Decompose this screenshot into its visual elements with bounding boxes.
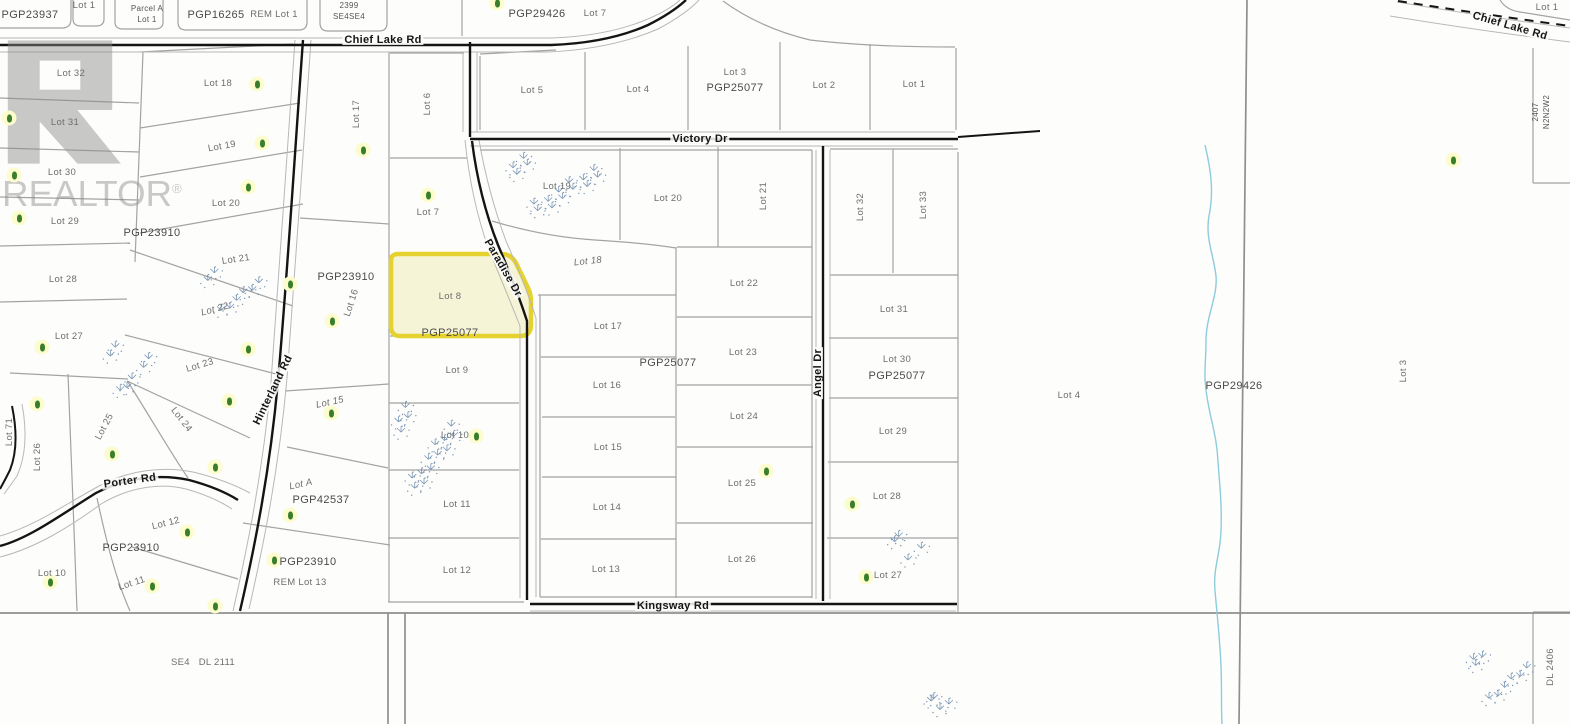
lot-label: Lot 3 <box>724 68 747 78</box>
lot-label: Lot 2 <box>813 81 836 91</box>
lot-label: Lot 26 <box>728 555 756 565</box>
stream-line <box>1205 145 1222 724</box>
tree-marker <box>859 570 874 585</box>
plan-number-label: PGP25077 <box>868 371 925 381</box>
lot-label: Lot 1 <box>903 80 926 90</box>
tree-marker <box>356 143 371 158</box>
lot-label: Lot 10 <box>441 431 469 441</box>
plan-number-label: PGP25077 <box>706 83 763 93</box>
tree-marker <box>759 464 774 479</box>
plan-number-label: PGP23910 <box>317 272 374 282</box>
plan-number-label: PGP29426 <box>508 9 565 19</box>
tree-marker <box>283 277 298 292</box>
tree-marker <box>469 429 484 444</box>
tree-marker <box>145 579 160 594</box>
lot-label: Lot 4 <box>627 85 650 95</box>
tree-marker <box>241 180 256 195</box>
plan-number-label: PGP23937 <box>1 10 58 20</box>
lot-label: Lot 4 <box>1058 391 1081 401</box>
lot-label: Lot 31 <box>880 305 908 315</box>
lot-label: Lot 20 <box>654 194 682 204</box>
road-label: Kingsway Rd <box>635 601 711 611</box>
lot-label: 2399 <box>340 1 359 11</box>
lot-label: Lot 30 <box>48 168 76 178</box>
parcel-lines-layer <box>0 0 1570 724</box>
tree-marker <box>325 314 340 329</box>
lot-label: Lot 22 <box>730 279 758 289</box>
marsh-symbol <box>887 530 930 568</box>
lot-label: Lot 28 <box>49 275 77 285</box>
road-casings <box>0 0 1570 611</box>
marsh-symbol <box>103 341 158 399</box>
lot-label: Lot 7 <box>417 208 440 218</box>
tree-marker <box>1446 153 1461 168</box>
lot-label: Lot 17 <box>352 100 362 128</box>
lot-label: Lot 29 <box>879 427 907 437</box>
lot-label: Lot 71 <box>5 418 15 446</box>
lot-label: Lot 11 <box>443 500 471 510</box>
tree-marker <box>241 342 256 357</box>
plan-number-label: PGP16265 <box>187 10 244 20</box>
road-label: Victory Dr <box>670 134 729 144</box>
plan-number-label: PGP29426 <box>1205 381 1262 391</box>
lot-label: Lot 6 <box>423 93 433 116</box>
lot-label: DL 2406 <box>1546 648 1556 686</box>
tree-marker <box>421 188 436 203</box>
marsh-symbol <box>923 692 957 717</box>
lot-label: Lot 1 <box>73 1 96 11</box>
plan-number-label: PGP23910 <box>102 543 159 553</box>
road-label: Chief Lake Rd <box>342 35 423 45</box>
lot-label: Lot 10 <box>38 569 66 579</box>
lot-label: Lot 17 <box>594 322 622 332</box>
tree-marker <box>250 77 265 92</box>
lot-label: N2N2W2 <box>1542 95 1552 129</box>
lot-label: Lot 16 <box>593 381 621 391</box>
marsh-symbol <box>1466 650 1536 706</box>
lot-label: Lot 29 <box>51 217 79 227</box>
lot-label: Lot 23 <box>729 348 757 358</box>
lot-label: Lot 14 <box>593 503 621 513</box>
lot-label: Lot 25 <box>728 479 756 489</box>
lot-label: Lot 28 <box>873 492 901 502</box>
lot-label: 2407 <box>1531 103 1541 122</box>
lot-label: Lot 31 <box>51 118 79 128</box>
lot-label: Lot 32 <box>57 69 85 79</box>
lot-label: Lot 27 <box>874 571 902 581</box>
tree-marker <box>222 394 237 409</box>
lot-label: Lot 32 <box>856 193 866 221</box>
plan-number-label: PGP23910 <box>123 228 180 238</box>
lot-label: Parcel A <box>131 4 163 14</box>
lot-label: Lot 18 <box>204 79 232 89</box>
lot-label: Lot 9 <box>446 366 469 376</box>
tree-marker <box>12 211 27 226</box>
lot-label: Lot 19 <box>543 182 571 192</box>
tree-marker <box>255 136 270 151</box>
tree-marker <box>30 397 45 412</box>
lot-label: Lot 1 <box>137 15 156 25</box>
tree-marker <box>208 460 223 475</box>
road-label: Angel Dr <box>813 347 823 399</box>
lot-label: Lot 26 <box>33 443 43 471</box>
tree-marker <box>105 447 120 462</box>
tree-marker <box>208 599 223 614</box>
lot-label: REM Lot 13 <box>273 578 326 588</box>
plan-number-label: PGP23910 <box>279 557 336 567</box>
lot-label: Lot 33 <box>919 191 929 219</box>
lot-label: Lot 8 <box>439 292 462 302</box>
lot-label: Lot 13 <box>592 565 620 575</box>
lot-label: Lot 30 <box>883 355 911 365</box>
tree-marker <box>35 340 50 355</box>
tree-marker <box>180 525 195 540</box>
lot-label: Lot 7 <box>584 9 607 19</box>
lot-label: SE4SE4 <box>333 12 365 22</box>
tree-marker <box>845 497 860 512</box>
tree-marker <box>2 111 17 126</box>
tree-marker <box>7 168 22 183</box>
plan-number-label: PGP42537 <box>292 495 349 505</box>
lot-label: SE4 DL 2111 <box>171 658 235 668</box>
lot-label: Lot 3 <box>1399 360 1409 383</box>
plat-map-canvas[interactable]: REALTOR® Chief Lake RdChief Lake RdVicto… <box>0 0 1570 724</box>
plan-number-label: PGP25077 <box>639 358 696 368</box>
parcel-boundaries <box>0 0 1570 724</box>
lot-label: Lot 1 <box>1536 3 1559 13</box>
road-centerlines <box>0 0 1570 611</box>
lot-label: Lot 24 <box>730 412 758 422</box>
plan-number-label: PGP25077 <box>421 328 478 338</box>
tree-marker <box>283 508 298 523</box>
lot-label: Lot 21 <box>759 182 769 210</box>
lot-label: Lot 27 <box>55 332 83 342</box>
marsh-symbol <box>391 401 463 496</box>
lot-label: Lot 20 <box>212 199 240 209</box>
lot-label: Lot 15 <box>594 443 622 453</box>
lot-label: Lot 12 <box>443 566 471 576</box>
lot-label: REM Lot 1 <box>250 10 298 20</box>
lot-label: Lot 5 <box>521 86 544 96</box>
marsh-symbols-layer <box>103 152 1536 718</box>
